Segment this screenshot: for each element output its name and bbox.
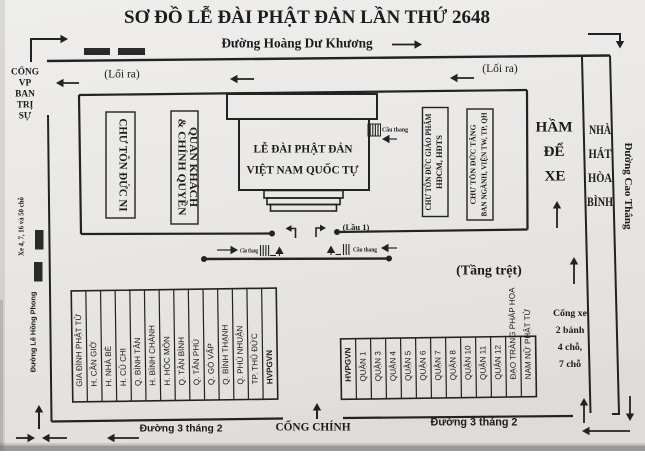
svg-text:NHÀ: NHÀ xyxy=(589,122,611,137)
svg-text:HĐCM, HĐTS: HĐCM, HĐTS xyxy=(435,135,444,189)
svg-text:SƠ ĐỒ LỄ ĐÀI PHẬT ĐẢN LẦN THỨ: SƠ ĐỒ LỄ ĐÀI PHẬT ĐẢN LẦN THỨ 2648 xyxy=(124,6,490,28)
svg-text:TRỊ: TRỊ xyxy=(17,101,34,111)
svg-text:VP: VP xyxy=(19,79,32,89)
svg-text:Đường Hoàng Dư Khương: Đường Hoàng Dư Khương xyxy=(221,36,373,51)
svg-text:ĐẠO TRÀNG PHÁP HOA: ĐẠO TRÀNG PHÁP HOA xyxy=(508,287,518,380)
svg-text:ĐỂ: ĐỂ xyxy=(543,142,564,160)
svg-text:HÒA: HÒA xyxy=(588,170,612,185)
svg-text:BAN: BAN xyxy=(15,90,35,100)
svg-text:QUẬN 4: QUẬN 4 xyxy=(388,350,397,381)
svg-text:& CHÍNH QUYỀN: & CHÍNH QUYỀN xyxy=(176,119,189,217)
svg-text:Q. GÒ VẤP: Q. GÒ VẤP xyxy=(205,343,216,385)
svg-text:CHƯ TÔN ĐỨC TĂNG: CHƯ TÔN ĐỨC TĂNG xyxy=(468,125,478,205)
svg-text:Đường 3 tháng 2: Đường 3 tháng 2 xyxy=(431,417,518,429)
svg-text:NAM NỮ PHẬT TỬ: NAM NỮ PHẬT TỬ xyxy=(523,308,533,379)
svg-text:Q. BÌNH TÂN: Q. BÌNH TÂN xyxy=(133,337,143,386)
svg-text:GIA ĐÌNH PHẬT TỬ: GIA ĐÌNH PHẬT TỬ xyxy=(74,314,84,387)
svg-text:Đường Cao Thắng: Đường Cao Thắng xyxy=(622,142,634,230)
svg-text:QUAN KHÁCH: QUAN KHÁCH xyxy=(187,127,199,207)
svg-text:H. NHÀ BÈ: H. NHÀ BÈ xyxy=(104,345,114,386)
svg-text:Cầu thang: Cầu thang xyxy=(240,248,258,255)
svg-text:Cổng xe: Cổng xe xyxy=(553,308,588,319)
svg-text:LỄ ĐÀI PHẬT ĐẢN: LỄ ĐÀI PHẬT ĐẢN xyxy=(254,141,353,156)
svg-text:Q. TÂN BÌNH: Q. TÂN BÌNH xyxy=(177,337,187,386)
svg-text:Đường Lê Hồng Phong: Đường Lê Hồng Phong xyxy=(29,292,38,373)
svg-text:2 bánh: 2 bánh xyxy=(556,325,585,336)
svg-text:CHƯ TÔN ĐỨC NI: CHƯ TÔN ĐỨC NI xyxy=(117,119,130,213)
svg-text:QUẬN 11: QUẬN 11 xyxy=(478,345,487,380)
svg-text:(Lối ra): (Lối ra) xyxy=(104,68,140,81)
svg-text:QUẬN 7: QUẬN 7 xyxy=(433,350,442,381)
svg-text:7 chỗ: 7 chỗ xyxy=(559,359,581,370)
svg-text:H. HÓC MÔN: H. HÓC MÔN xyxy=(162,336,172,386)
svg-text:Q. BÌNH THẠNH: Q. BÌNH THẠNH xyxy=(221,324,231,384)
svg-text:Cầu thang: Cầu thang xyxy=(382,127,409,134)
svg-text:QUẬN 1: QUẬN 1 xyxy=(358,351,367,382)
svg-text:XE: XE xyxy=(544,168,565,185)
svg-text:QUẬN 3: QUẬN 3 xyxy=(373,351,382,382)
svg-text:Cầu thang: Cầu thang xyxy=(353,247,378,254)
svg-text:QUẬN 12: QUẬN 12 xyxy=(493,344,502,379)
svg-text:SỰ: SỰ xyxy=(19,111,32,122)
svg-text:TP. THỦ ĐỨC: TP. THỦ ĐỨC xyxy=(250,333,260,384)
svg-text:Đường 3 tháng 2: Đường 3 tháng 2 xyxy=(140,424,223,435)
svg-text:VIỆT NAM QUỐC TỰ: VIỆT NAM QUỐC TỰ xyxy=(247,162,360,177)
svg-text:(Lối ra): (Lối ra) xyxy=(482,62,518,75)
svg-text:HVPGVN: HVPGVN xyxy=(343,347,352,381)
svg-text:QUẬN 6: QUẬN 6 xyxy=(418,350,427,381)
svg-text:Q. TÂN PHÚ: Q. TÂN PHÚ xyxy=(192,339,202,385)
svg-text:H. BÌNH CHÁNH: H. BÌNH CHÁNH xyxy=(147,325,157,386)
svg-text:Xe 4, 7, 16 và 50 chỗ: Xe 4, 7, 16 và 50 chỗ xyxy=(19,196,26,256)
svg-text:CHƯ TÔN ĐỨC GIÁO PHẨM: CHƯ TÔN ĐỨC GIÁO PHẨM xyxy=(423,113,433,210)
svg-text:BAN NGÀNH, VIỆN TW, TP, QH: BAN NGÀNH, VIỆN TW, TP, QH xyxy=(479,113,489,217)
svg-text:HÁT: HÁT xyxy=(589,146,612,161)
svg-text:(Tầng trệt): (Tầng trệt) xyxy=(456,264,522,279)
svg-text:QUẬN 10: QUẬN 10 xyxy=(463,345,472,380)
svg-text:H. CỦ CHI: H. CỦ CHI xyxy=(119,348,129,386)
svg-text:QUẬN 5: QUẬN 5 xyxy=(403,350,412,381)
svg-text:(Lầu 1): (Lầu 1) xyxy=(343,222,370,232)
svg-text:4 chỗ,: 4 chỗ, xyxy=(558,342,583,353)
svg-text:H. CẦN GIỜ: H. CẦN GIỜ xyxy=(88,341,99,386)
svg-text:CỔNG CHÍNH: CỔNG CHÍNH xyxy=(275,421,350,434)
svg-text:QUẬN 8: QUẬN 8 xyxy=(448,350,457,381)
svg-text:HVPGVN: HVPGVN xyxy=(265,350,274,384)
svg-text:Q. PHÚ NHUẬN: Q. PHÚ NHUẬN xyxy=(235,325,245,384)
svg-text:HẦM: HẦM xyxy=(535,119,572,136)
svg-text:BÌNH: BÌNH xyxy=(587,194,613,209)
